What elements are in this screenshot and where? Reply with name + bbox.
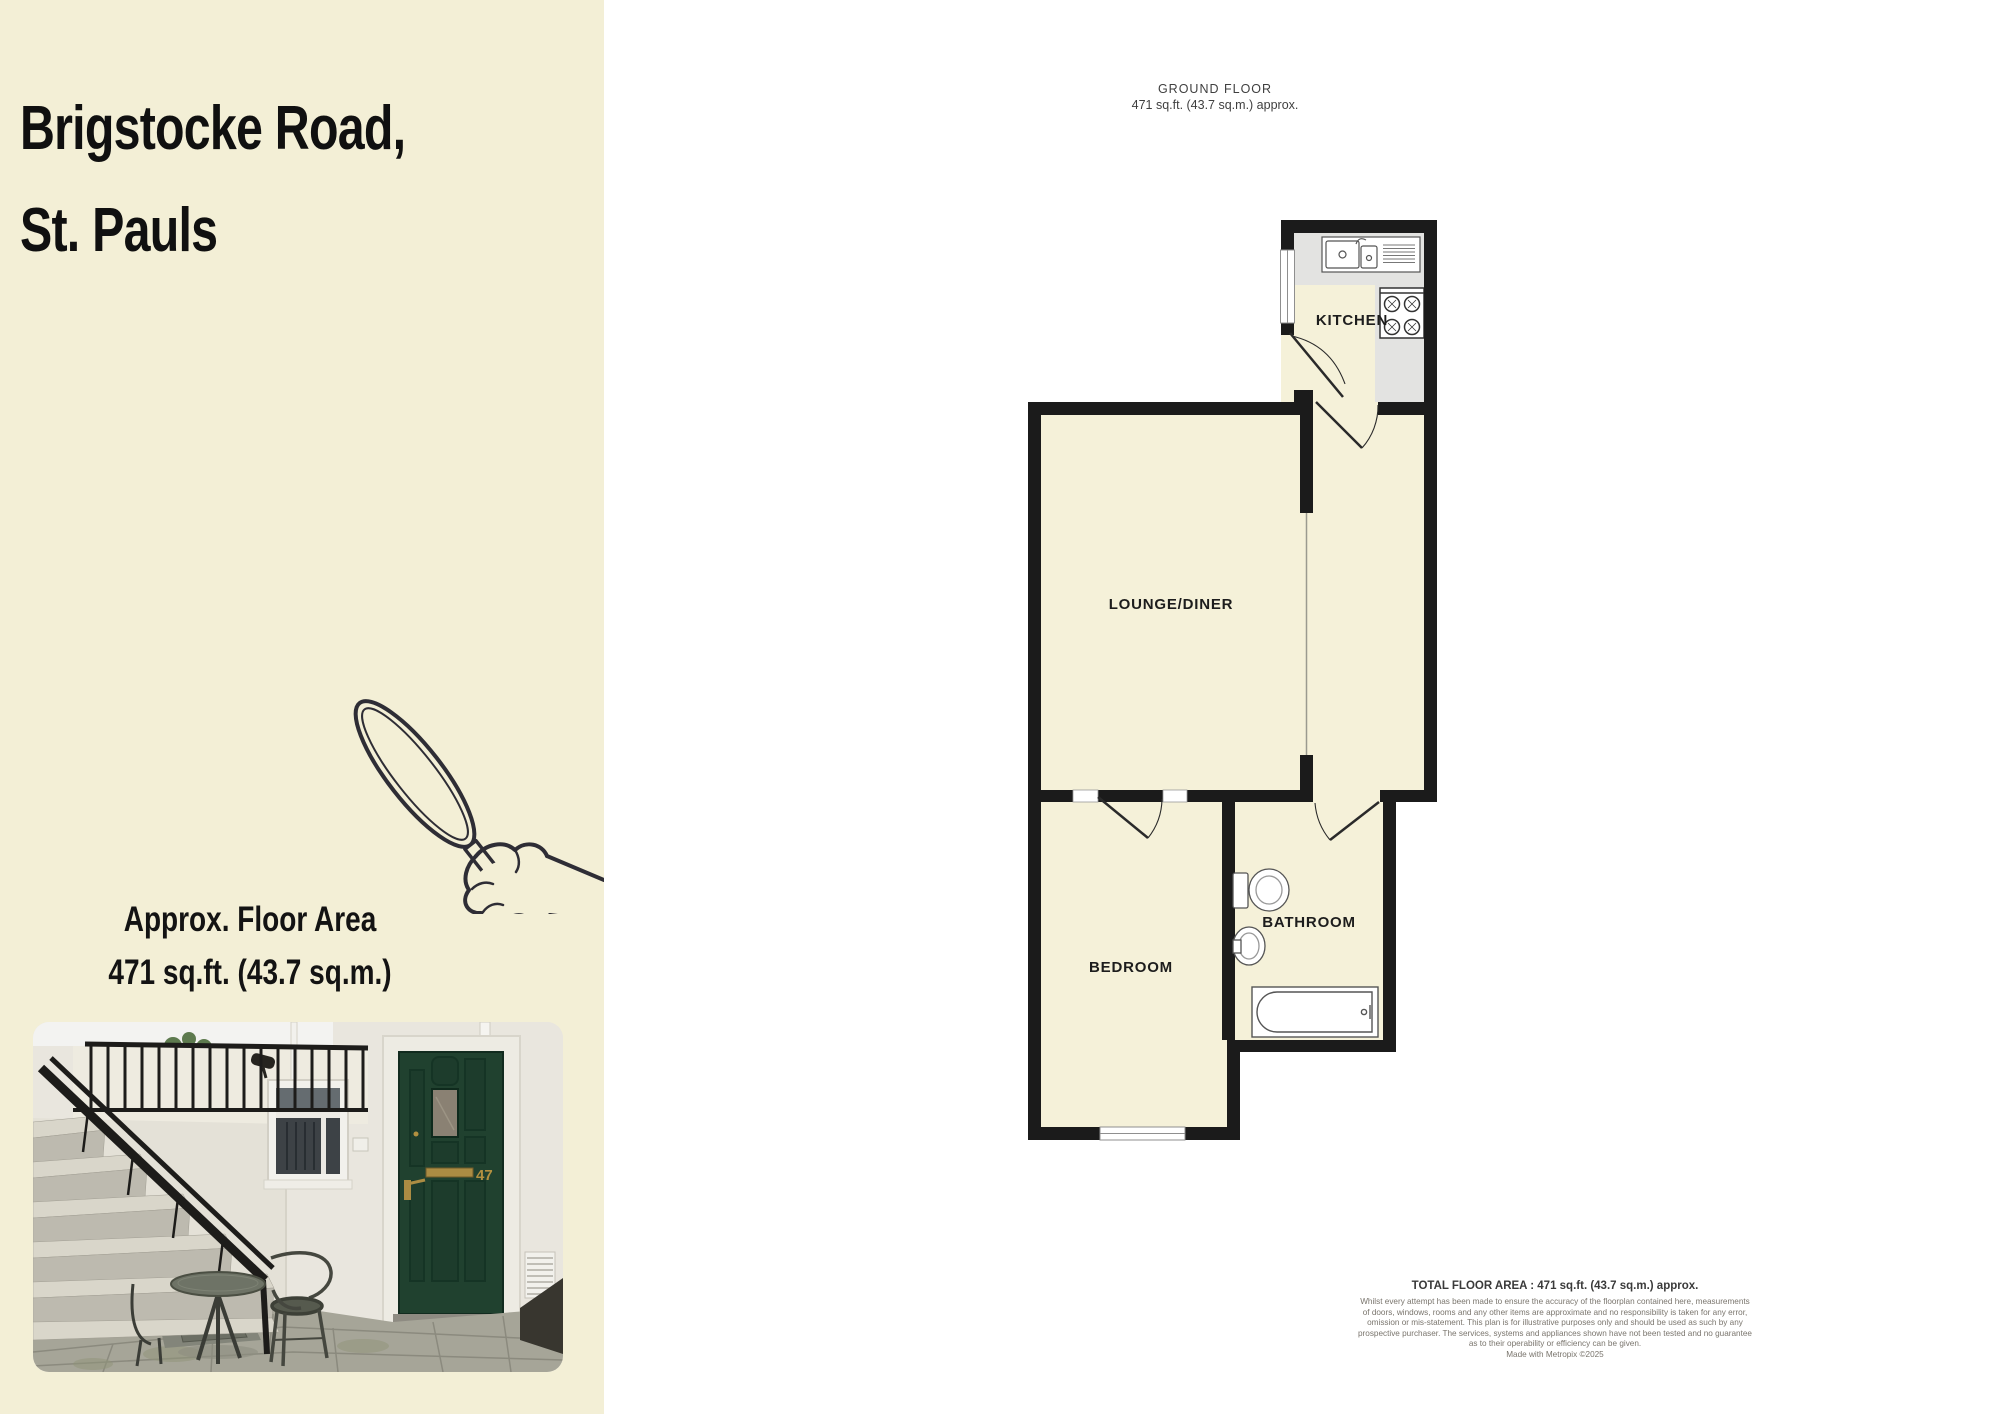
disclaimer-line: omission or mis-statement. This plan is … [1285, 1318, 1825, 1329]
metropix-credit: Made with Metropix ©2025 [1285, 1350, 1825, 1361]
disclaimer-line: prospective purchaser. The services, sys… [1285, 1329, 1825, 1340]
brochure-page: Brigstocke Road, St. Pauls [0, 0, 2000, 1414]
property-title: Brigstocke Road, St. Pauls [20, 78, 600, 282]
room-label-kitchen: KITCHEN [1316, 312, 1388, 329]
toilet-icon [1233, 869, 1289, 911]
plan-header: GROUND FLOOR 471 sq.ft. (43.7 sq.m.) app… [1045, 82, 1385, 112]
table-top [171, 1272, 265, 1296]
disclaimer-line: as to their operability or efficiency ca… [1285, 1339, 1825, 1350]
property-title-line1: Brigstocke Road, [20, 78, 472, 180]
door-number: 47 [476, 1167, 493, 1184]
house-sign [353, 1138, 368, 1151]
magnifier-hand-icon [352, 690, 604, 914]
floor-area-label: Approx. Floor Area [72, 893, 427, 946]
floor-area-value: 471 sq.ft. (43.7 sq.m.) [72, 946, 427, 999]
disclaimer-line: Whilst every attempt has been made to en… [1285, 1297, 1825, 1308]
entrance-photo: 47 [33, 1022, 563, 1372]
disclaimer-line: of doors, windows, rooms and any other i… [1285, 1308, 1825, 1319]
room-label-bedroom: BEDROOM [1089, 959, 1173, 976]
bath-icon [1252, 987, 1378, 1037]
basin-icon [1233, 927, 1265, 965]
room-label-bathroom: BATHROOM [1262, 914, 1356, 931]
plan-header-title: GROUND FLOOR [1045, 82, 1385, 96]
sink-icon [1322, 237, 1420, 272]
room-label-lounge: LOUNGE/DINER [1109, 596, 1234, 613]
sidebar: Brigstocke Road, St. Pauls [0, 0, 604, 1414]
front-door: 47 [383, 1036, 520, 1328]
plan-footer: TOTAL FLOOR AREA : 471 sq.ft. (43.7 sq.m… [1285, 1280, 1825, 1361]
property-title-line2: St. Pauls [20, 180, 472, 282]
letterbox [426, 1168, 473, 1177]
plan-header-subtitle: 471 sq.ft. (43.7 sq.m.) approx. [1045, 98, 1385, 112]
floorplan-drawing: KITCHEN LOUNGE/DINER BEDROOM BATHROOM [1000, 200, 1460, 1160]
floor-area-summary: Approx. Floor Area 471 sq.ft. (43.7 sq.m… [28, 893, 472, 999]
total-floor-area: TOTAL FLOOR AREA : 471 sq.ft. (43.7 sq.m… [1285, 1280, 1825, 1292]
disclaimer: Whilst every attempt has been made to en… [1285, 1297, 1825, 1350]
entrance-photo-scene: 47 [33, 1022, 563, 1372]
peephole [414, 1132, 419, 1137]
